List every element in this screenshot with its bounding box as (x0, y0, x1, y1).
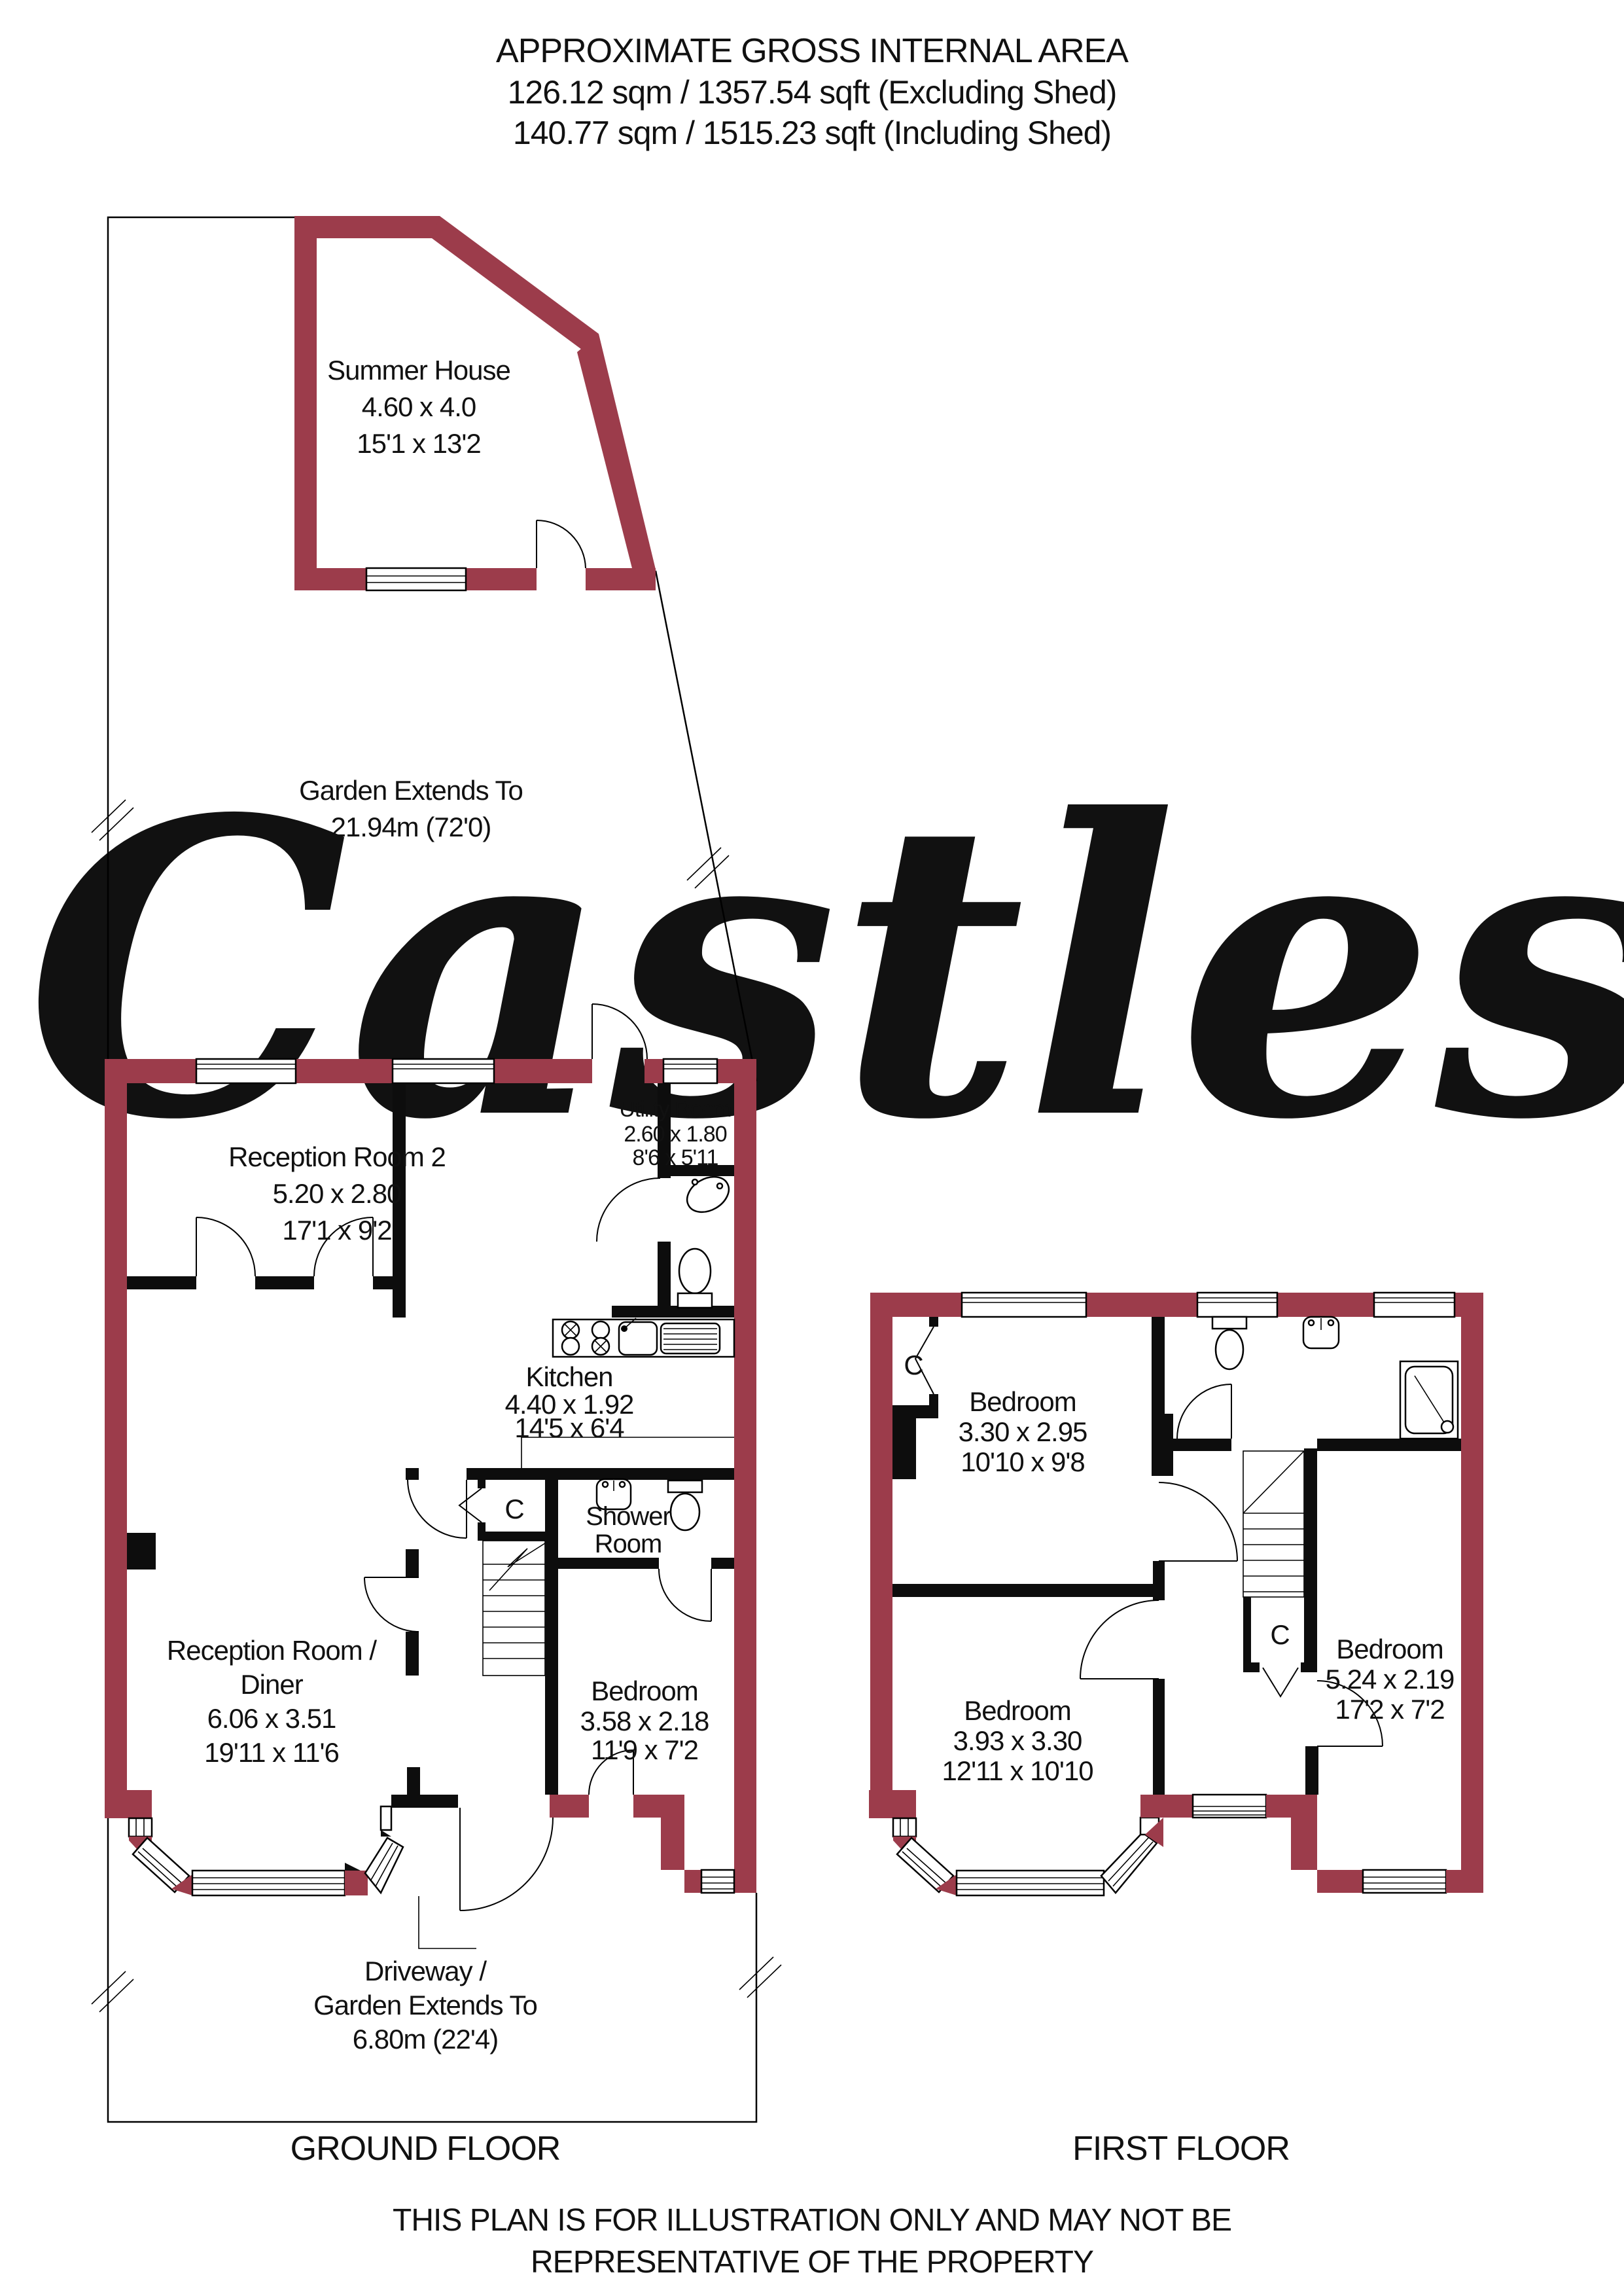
front-door-arc (460, 1808, 553, 1910)
door-arc (659, 1569, 711, 1621)
door-arc (364, 1577, 419, 1632)
bedroom-left-dim-m: 3.93 x 3.30 (953, 1725, 1082, 1756)
shower-room-label1: Shower (586, 1502, 671, 1531)
wall-interior (127, 1276, 196, 1289)
header-line1: APPROXIMATE GROSS INTERNAL AREA (496, 32, 1129, 70)
window (962, 1293, 1086, 1317)
wall-top (296, 1059, 393, 1083)
bedroom-top-dim-m: 3.30 x 2.95 (959, 1416, 1087, 1447)
reception2-label: Reception Room 2 (228, 1141, 446, 1172)
kitchen-counter (553, 1318, 734, 1357)
wall-interior (658, 1242, 671, 1306)
closet-label: C (904, 1350, 923, 1380)
reception2-dim-m: 5.20 x 2.80 (273, 1178, 402, 1209)
wall-interior (406, 1549, 419, 1577)
first-floor-plan: C (869, 1293, 1483, 1895)
wall-bottom (1446, 1870, 1483, 1893)
bedroom-right-dim-m: 5.24 x 2.19 (1326, 1664, 1455, 1695)
stairs (483, 1541, 547, 1676)
wall-left (105, 1059, 127, 1790)
wall-bottom (633, 1795, 661, 1818)
summer-house: Summer House 4.60 x 4.0 15'1 x 13'2 (294, 216, 656, 590)
bedroom-dim-m: 3.58 x 2.18 (580, 1706, 709, 1736)
wall-interior (391, 1795, 458, 1808)
wall-top (1455, 1293, 1483, 1317)
wall-interior (467, 1468, 734, 1480)
summer-house-label: Summer House (327, 355, 510, 386)
wall-top (1277, 1293, 1374, 1317)
wall-interior (1305, 1746, 1318, 1795)
wall-angled (577, 334, 656, 573)
wall-bottom (1266, 1795, 1317, 1818)
bedroom-top-label: Bedroom (969, 1386, 1076, 1417)
closet-label: C (1270, 1619, 1289, 1650)
wall-top (105, 1059, 196, 1083)
window (1197, 1293, 1277, 1317)
wall-step (1291, 1818, 1317, 1870)
bedroom-dim-ft: 11'9 x 7'2 (591, 1734, 698, 1765)
watermark-text: Castles (26, 732, 1624, 1209)
door-arc (1080, 1600, 1159, 1679)
chimney-breast (892, 1418, 916, 1479)
closet (459, 1479, 545, 1541)
wall (586, 568, 656, 590)
wall-interior (1152, 1317, 1165, 1414)
wall-angled (432, 216, 599, 351)
wall-interior (1153, 1561, 1165, 1600)
wall-top (717, 1059, 756, 1083)
utility-dim-m: 2.60 x 1.80 (624, 1122, 726, 1147)
bedroom-left-dim-ft: 12'11 x 10'10 (942, 1755, 1093, 1786)
wall-interior (255, 1276, 314, 1289)
garden-label-line2: 21.94m (72'0) (331, 812, 491, 842)
wall-top (870, 1293, 962, 1317)
kitchen-label: Kitchen (525, 1361, 612, 1392)
wall-interior (1153, 1679, 1165, 1795)
window (196, 1059, 296, 1083)
door-arc (1177, 1384, 1231, 1439)
wall-interior (407, 1767, 420, 1795)
wall-interior (1165, 1439, 1231, 1451)
basin-icon (1303, 1317, 1339, 1348)
wall-right (734, 1059, 756, 1893)
reception-diner-dim-ft: 19'11 x 11'6 (204, 1737, 339, 1768)
door-arc (537, 520, 586, 568)
utility-label: Utility Room (619, 1097, 731, 1122)
header: APPROXIMATE GROSS INTERNAL AREA 126.12 s… (496, 32, 1129, 151)
shower-room-label2: Room (595, 1530, 662, 1558)
wall (294, 568, 366, 590)
window (663, 1059, 717, 1083)
wall-interior (545, 1479, 558, 1795)
wall-interior (711, 1558, 734, 1569)
reception-diner-label2: Diner (240, 1669, 303, 1700)
bedroom-right-label: Bedroom (1336, 1634, 1443, 1664)
wall-right (1461, 1293, 1483, 1893)
wall-bottom (550, 1795, 589, 1818)
header-line3: 140.77 sqm / 1515.23 sqft (Including She… (513, 115, 1111, 151)
closet-label: C (504, 1494, 523, 1524)
summer-house-dim-ft: 15'1 x 13'2 (357, 428, 481, 459)
door-arc (1159, 1482, 1237, 1561)
driveway-label1: Driveway / (364, 1956, 487, 1986)
toilet-icon (1212, 1317, 1246, 1369)
garden-label-line1: Garden Extends To (299, 775, 523, 806)
driveway-label3: 6.80m (22'4) (353, 2024, 498, 2054)
disclaimer-line2: REPRESENTATIVE OF THE PROPERTY (531, 2245, 1093, 2280)
wall-top (644, 1059, 663, 1083)
wall-step (661, 1795, 684, 1870)
chimney-breast (127, 1533, 156, 1570)
floorplan-drawing: Castles APPROXIMATE GROSS INTERNAL AREA … (0, 0, 1624, 2296)
window (366, 568, 466, 590)
window (1374, 1293, 1455, 1317)
bedroom-right-dim-ft: 17'2 x 7'2 (1335, 1694, 1444, 1725)
first-floor-title: FIRST FLOOR (1072, 2130, 1290, 2168)
window (393, 1059, 494, 1083)
ground-floor-title: GROUND FLOOR (291, 2130, 561, 2168)
driveway-label2: Garden Extends To (313, 1990, 537, 2020)
bedroom-left-label: Bedroom (964, 1695, 1070, 1726)
wall-bottom (1317, 1870, 1363, 1893)
bedroom-label: Bedroom (591, 1676, 697, 1706)
stairs (1243, 1451, 1304, 1597)
wall-interior (1317, 1439, 1461, 1451)
wall-interior (1304, 1448, 1317, 1662)
wall (294, 216, 440, 238)
window (1193, 1795, 1266, 1818)
wall-top (1086, 1293, 1197, 1317)
floorplan-page: Castles APPROXIMATE GROSS INTERNAL AREA … (0, 0, 1624, 2296)
reception-diner-label1: Reception Room / (167, 1635, 377, 1666)
wall-interior (406, 1632, 419, 1676)
door-arc (196, 1217, 255, 1276)
bedroom-top-dim-ft: 10'10 x 9'8 (961, 1446, 1085, 1477)
sink-icon (619, 1318, 720, 1355)
reception-diner-dim-m: 6.06 x 3.51 (207, 1703, 336, 1734)
wall-interior (406, 1468, 419, 1480)
footer: GROUND FLOOR FIRST FLOOR THIS PLAN IS FO… (291, 2130, 1290, 2280)
break-mark-right (739, 1957, 781, 1998)
wall-interior (892, 1584, 1153, 1597)
summer-house-dim-m: 4.60 x 4.0 (362, 391, 476, 422)
window (701, 1870, 734, 1893)
wall (294, 216, 317, 590)
wall-bottom (684, 1870, 701, 1893)
toilet-icon (668, 1480, 702, 1530)
stairs-direction-arrow (489, 1542, 547, 1590)
wall-interior (612, 1306, 734, 1318)
window (1363, 1870, 1446, 1893)
wall-interior (373, 1276, 393, 1289)
wall-bottom (1140, 1795, 1193, 1818)
shower-tray-icon (1400, 1361, 1458, 1439)
wall (466, 568, 537, 590)
bay-window (869, 1790, 1163, 1895)
wall-top (494, 1059, 592, 1083)
disclaimer-line1: THIS PLAN IS FOR ILLUSTRATION ONLY AND M… (393, 2203, 1231, 2238)
door-arc (408, 1480, 467, 1538)
reception2-dim-ft: 17'1 x 9'2 (282, 1215, 391, 1246)
wall-interior (558, 1558, 659, 1569)
utility-dim-ft: 8'6 x 5'11 (633, 1145, 718, 1170)
kitchen-dim-ft: 14'5 x 6'4 (514, 1412, 624, 1443)
bay-window (105, 1790, 403, 1895)
header-line2: 126.12 sqm / 1357.54 sqft (Excluding She… (508, 74, 1117, 111)
break-mark-left (92, 1971, 133, 2012)
dimension-leader (419, 1896, 476, 1948)
toilet-icon (678, 1249, 712, 1308)
wall-left (870, 1293, 892, 1790)
